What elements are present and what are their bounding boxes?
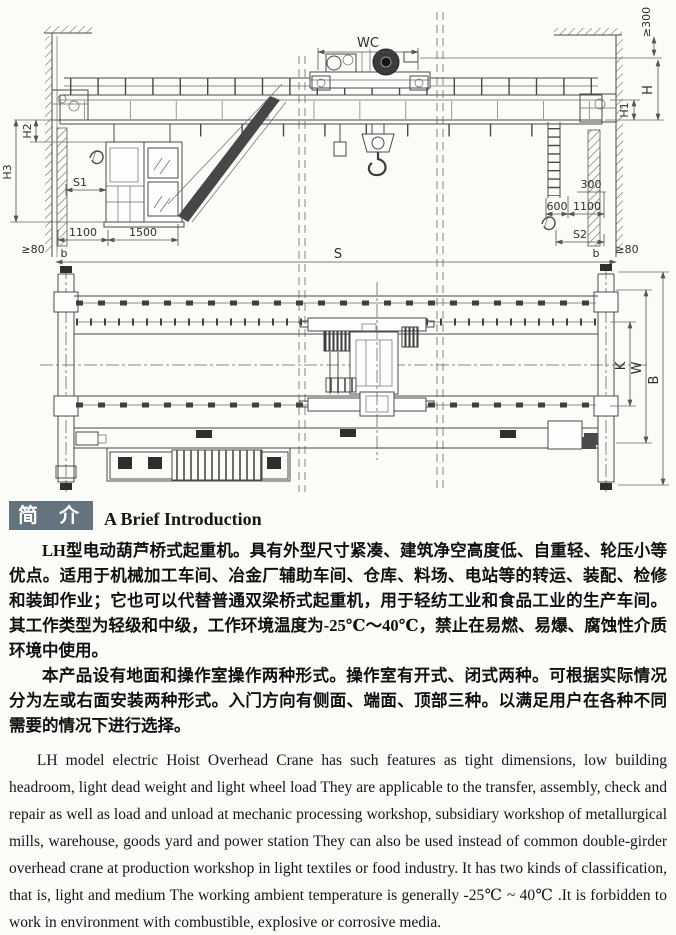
front-elevation-view: WC ≥300 H H1 300 — [1, 7, 664, 492]
operator-cabin — [104, 124, 184, 227]
building-ceiling-left — [44, 26, 92, 33]
zh-paragraph-2: 本产品设有地面和操作室操作两种形式。操作室有开式、闭式两种。可根据实际情况分为左… — [9, 663, 667, 738]
dimension-h1: H1 — [618, 100, 634, 120]
plan-view: K W B — [40, 264, 669, 492]
crane-drawing: WC ≥300 H H1 300 — [0, 0, 676, 498]
cabin-stairs — [168, 84, 286, 222]
dimension-span-s: ≥80 b S b ≥80 — [21, 243, 638, 262]
access-ladder-right — [548, 122, 560, 198]
dimension-wc: WC — [318, 36, 418, 70]
dim-label-gap-left: ≥80 — [21, 243, 44, 256]
dim-label-h3: H3 — [1, 164, 14, 179]
dim-label-h2: H2 — [21, 123, 34, 138]
trolley-plan — [300, 282, 434, 460]
dimension-h: H — [641, 60, 658, 120]
dim-label-k: K — [614, 361, 629, 370]
dimension-k: K — [614, 322, 630, 406]
dim-label-roof-clearance: ≥300 — [640, 7, 653, 37]
dim-label-b-right: b — [593, 247, 600, 260]
dimension-b: B — [647, 272, 663, 485]
dimension-s1: S1 — [66, 176, 106, 196]
dimension-w: W — [630, 290, 646, 443]
hoist-trolley — [310, 49, 430, 175]
wall-column-left — [57, 128, 67, 246]
en-paragraph-1: LH model electric Hoist Overhead Crane h… — [9, 747, 667, 935]
dim-label-1100-right: 1100 — [573, 200, 601, 213]
dim-label-w: W — [630, 361, 645, 374]
hook-symbol-left — [90, 150, 103, 164]
runway-end-truck-right — [580, 94, 616, 122]
dim-label-300: 300 — [581, 178, 602, 191]
dimension-roof-clearance: ≥300 — [640, 7, 654, 56]
section-heading: 简 介 A Brief Introduction — [9, 501, 667, 530]
catalog-page: WC ≥300 H H1 300 — [0, 0, 676, 935]
building-ceiling-right — [554, 28, 622, 35]
dim-label-600: 600 — [547, 200, 568, 213]
hook-symbol-right — [542, 216, 555, 230]
dimension-h2: H2 — [21, 120, 36, 142]
chinese-description: LH型电动葫芦桥式起重机。具有外型尺寸紧凑、建筑净空高度低、自重轻、轮压小等优点… — [9, 538, 667, 738]
zh-paragraph-1: LH型电动葫芦桥式起重机。具有外型尺寸紧凑、建筑净空高度低、自重轻、轮压小等优点… — [9, 538, 667, 663]
end-carriage-left — [54, 266, 106, 492]
dim-label-b-left: b — [61, 247, 68, 260]
intro-zh-box: 简 介 — [9, 501, 93, 530]
building-wall-left — [45, 33, 57, 257]
dimension-h3: H3 — [1, 120, 16, 222]
dim-label-h: H — [641, 85, 656, 95]
dim-label-1100-left: 1100 — [69, 226, 97, 239]
building-wall-right — [616, 35, 623, 257]
cabin-platform-plan — [107, 448, 290, 481]
walkway-plan — [74, 421, 598, 449]
introduction-section: 简 介 A Brief Introduction LH型电动葫芦桥式起重机。具有… — [0, 501, 676, 935]
crane-hook — [369, 152, 386, 175]
dim-label-wc: WC — [357, 36, 379, 51]
dim-label-b: B — [647, 376, 662, 385]
dim-label-s2: S2 — [573, 228, 587, 241]
intro-en-title: A Brief Introduction — [104, 509, 262, 530]
dim-label-1500: 1500 — [129, 226, 157, 239]
dim-label-s: S — [334, 247, 342, 262]
english-description: LH model electric Hoist Overhead Crane h… — [9, 747, 667, 935]
dim-label-h1: H1 — [618, 102, 631, 117]
end-carriage-right — [568, 264, 618, 492]
dim-label-s1: S1 — [73, 176, 87, 189]
dim-label-gap-right: ≥80 — [615, 243, 638, 256]
